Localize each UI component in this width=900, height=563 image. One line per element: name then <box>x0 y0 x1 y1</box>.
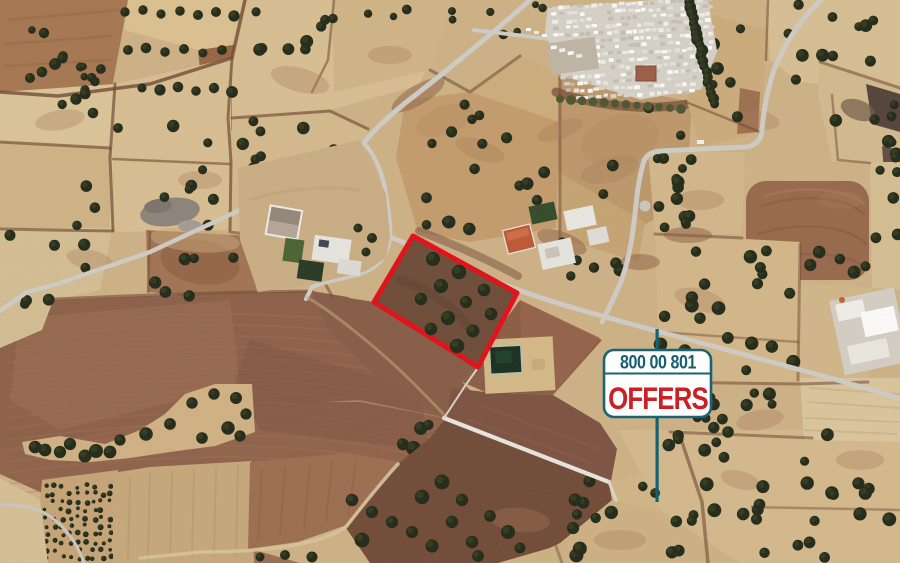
svg-text:OFFERS: OFFERS <box>608 382 708 417</box>
svg-text:800 00 801: 800 00 801 <box>620 351 696 373</box>
